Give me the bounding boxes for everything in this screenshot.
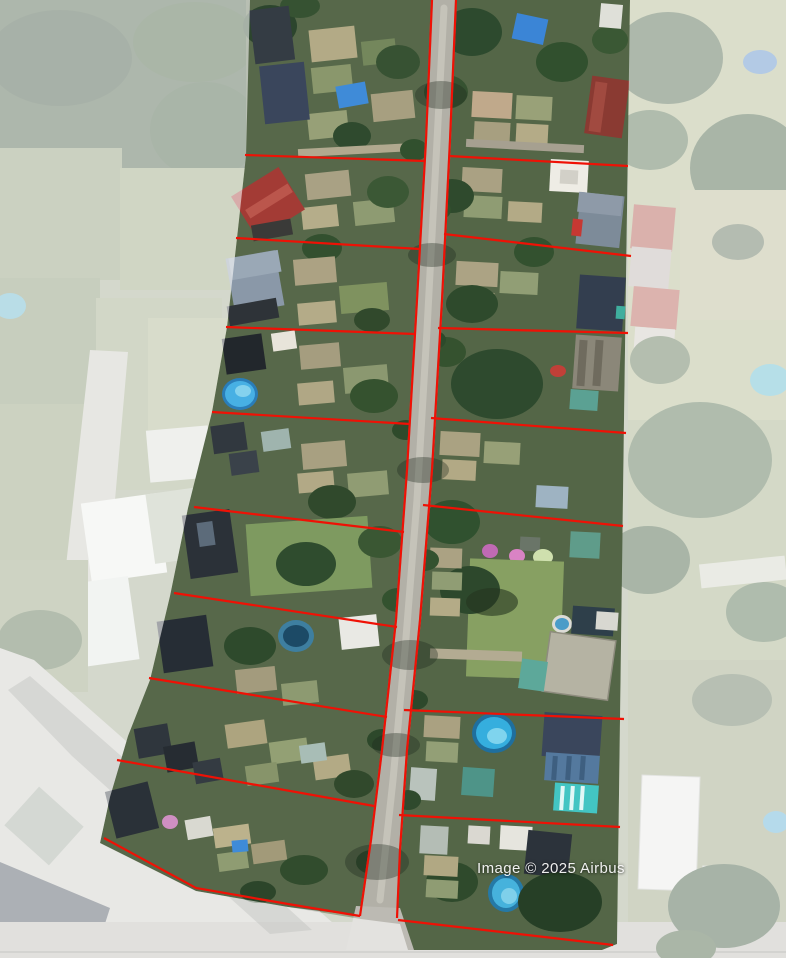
satellite-imagery [0, 0, 786, 958]
google-earth-canvas[interactable]: Image © 2025 Airbus [0, 0, 786, 958]
imagery-attribution: Image © 2025 Airbus [477, 860, 625, 877]
